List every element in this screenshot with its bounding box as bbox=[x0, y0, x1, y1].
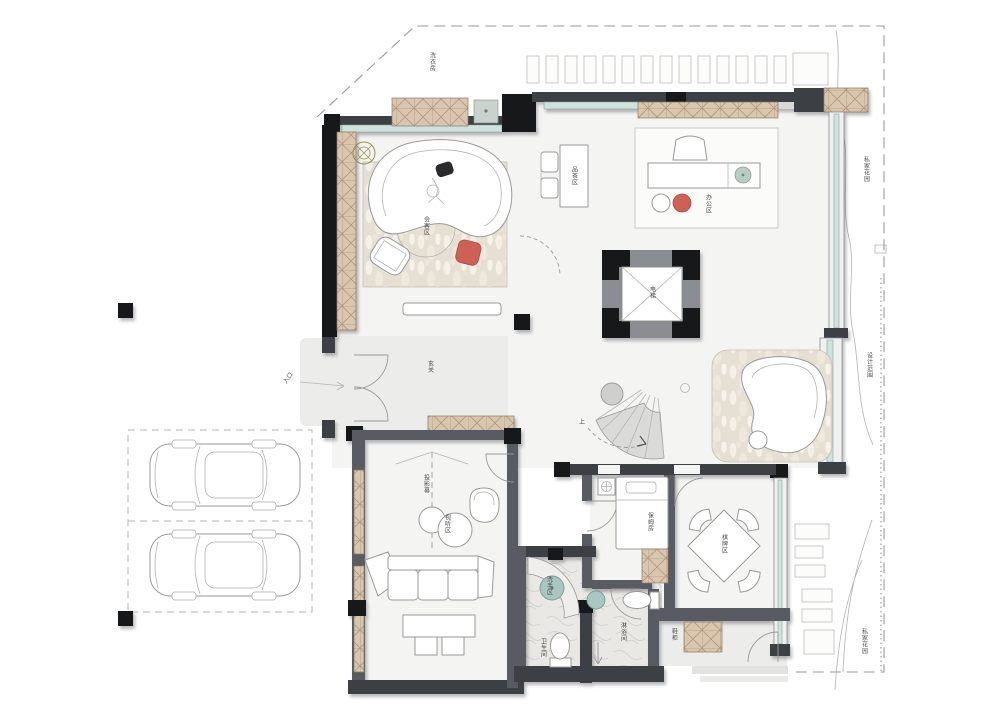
plant-stand bbox=[598, 478, 615, 495]
pillow bbox=[626, 482, 656, 493]
office-chair bbox=[673, 136, 707, 160]
lounge-side-table bbox=[749, 431, 767, 449]
shell-chair bbox=[470, 488, 499, 522]
cabinet-top-right bbox=[824, 88, 868, 112]
stair-column bbox=[601, 383, 623, 405]
label-shower: 淋浴间 bbox=[620, 621, 627, 642]
label-av: 视听区 bbox=[444, 513, 451, 533]
label-laundry: 洗衣房 bbox=[429, 51, 436, 72]
media-table bbox=[403, 615, 475, 637]
shoe-cabinet bbox=[684, 622, 722, 652]
cabinet-west-wall bbox=[337, 132, 356, 330]
basin-2 bbox=[587, 591, 605, 609]
label-wc: 卫生间 bbox=[540, 638, 547, 658]
red-stool bbox=[673, 194, 691, 212]
laundry-cabinet bbox=[392, 98, 468, 126]
floor-plan-svg: 洗衣房 会客区 品茶区 办公区 电梯 玄关 入口 上 投影幕 视听区 保姆房 棋… bbox=[0, 0, 1000, 707]
label-stairs-up: 上 bbox=[579, 418, 585, 426]
car-bottom bbox=[150, 530, 300, 600]
label-nanny: 保姆房 bbox=[647, 511, 654, 532]
top-deck-slats bbox=[527, 53, 828, 85]
garden-steps-lower bbox=[795, 524, 834, 654]
label-reception: 会客区 bbox=[423, 215, 430, 235]
label-elevator: 电梯 bbox=[649, 285, 656, 300]
stool-1 bbox=[415, 637, 437, 655]
car-top bbox=[150, 440, 300, 510]
lounge-area bbox=[712, 350, 832, 462]
white-stool bbox=[652, 194, 670, 212]
tea-chair-2 bbox=[541, 178, 558, 198]
toilet-2 bbox=[550, 633, 571, 667]
label-foyer: 玄关 bbox=[427, 359, 434, 374]
label-projection: 投影幕 bbox=[423, 473, 430, 494]
label-wash: 洗手区 bbox=[546, 575, 553, 595]
stream-path-lower bbox=[835, 520, 872, 690]
kitchen-counter bbox=[638, 102, 778, 118]
label-mahjong: 棋牌区 bbox=[721, 533, 728, 553]
label-garden-lower: 私家花园 bbox=[861, 627, 868, 655]
label-tea: 品茶区 bbox=[571, 166, 578, 186]
tv-bench bbox=[403, 303, 501, 315]
label-office: 办公区 bbox=[705, 193, 712, 213]
toilet-1 bbox=[623, 592, 659, 610]
label-design-scope: 设计范围 bbox=[866, 351, 873, 379]
nanny-wardrobe bbox=[642, 549, 668, 583]
stool-2 bbox=[442, 637, 464, 655]
tea-chair-1 bbox=[541, 152, 558, 172]
rear-corridor bbox=[684, 622, 722, 652]
label-garden-upper: 私家花园 bbox=[863, 155, 870, 183]
floor-plan-canvas: 洗衣房 会客区 品茶区 办公区 电梯 玄关 入口 上 投影幕 视听区 保姆房 棋… bbox=[0, 0, 1000, 707]
label-shoe-cabinet: 鞋柜 bbox=[671, 627, 678, 642]
label-entrance: 入口 bbox=[282, 371, 295, 385]
